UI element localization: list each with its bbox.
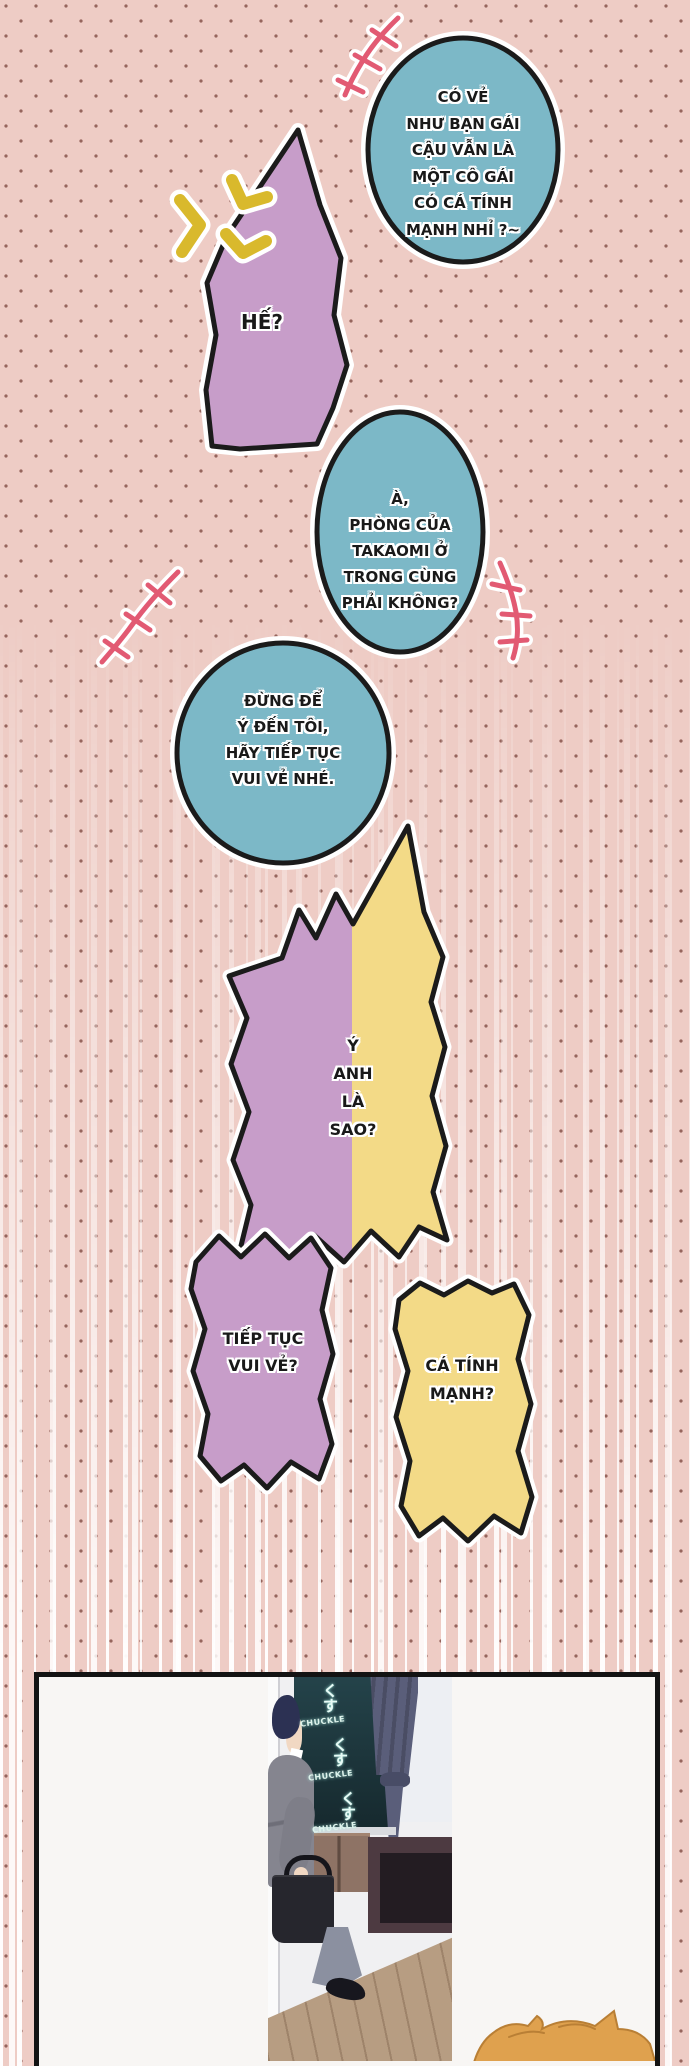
bubble-line: VUI VẺ NHÉ. [188,766,378,792]
bubble-line: TIẾP TỤC [183,1325,343,1352]
bubble-line: Ý ĐẾN TÔI, [188,714,378,740]
sfx-chuckle-jp: くす [338,1791,359,1821]
manga-page: CÓ VẺ NHƯ BẠN GÁI CẬU VẪN LÀ MỘT CÔ GÁI … [0,0,690,2066]
bubble-yellow-echo [395,1281,532,1541]
bubble-line: TAKAOMI Ở [310,538,490,564]
bubble-line: ĐỪNG ĐỂ [188,688,378,714]
bubble-line: LÀ [283,1088,423,1116]
bubble-text-dont-mind: ĐỪNG ĐỂ Ý ĐẾN TÔI, HÃY TIẾP TỤC VUI VẺ N… [188,688,378,792]
bubble-text-room-question: À, PHÒNG CỦA TAKAOMI Ở TRONG CÙNG PHẢI K… [310,486,490,616]
orange-hair-head [39,1677,655,2061]
bubble-line: ANH [283,1060,423,1088]
bubble-line: TRONG CÙNG [310,564,490,590]
bubble-line: CÓ CÁ TÍNH [368,190,558,217]
stitch-doodle-right [492,563,530,658]
bubble-line: Ý [283,1032,423,1060]
bubble-line: CẬU VẪN LÀ [368,137,558,164]
bubble-line: PHÒNG CỦA [310,512,490,538]
bubble-line: SAO? [283,1116,423,1144]
bubble-line: MẠNH NHỈ ?~ [368,217,558,244]
sfx-chuckle-jp: くす [330,1737,351,1767]
bubble-text-continue-fun: TIẾP TỤC VUI VẺ? [183,1325,343,1379]
sfx-chuckle-jp: くす [320,1683,341,1713]
bubble-text-what-do-you-mean: Ý ANH LÀ SAO? [283,1032,423,1144]
bubble-line: À, [310,486,490,512]
bottom-panel: くす CHUCKLE くす CHUCKLE くす CHUCKLE [34,1672,660,2066]
bubble-line: HÃY TIẾP TỤC [188,740,378,766]
bubble-text-he: HẾ? [212,308,312,336]
stitch-doodle-left [102,572,178,662]
bubble-blue-merged [177,412,483,863]
bubble-line: HẾ? [212,308,312,336]
bubble-text-strong-personality: CÁ TÍNH MẠNH? [382,1352,542,1408]
bubble-text-shock: CÓ VẺ NHƯ BẠN GÁI CẬU VẪN LÀ MỘT CÔ GÁI … [368,84,558,243]
bubble-line: MỘT CÔ GÁI [368,164,558,191]
bubble-line: PHẢI KHÔNG? [310,590,490,616]
bubble-line: NHƯ BẠN GÁI [368,111,558,138]
bubble-line: CÓ VẺ [368,84,558,111]
bubble-line: CÁ TÍNH [382,1352,542,1380]
bubble-line: VUI VẺ? [183,1352,343,1379]
bubble-line: MẠNH? [382,1380,542,1408]
